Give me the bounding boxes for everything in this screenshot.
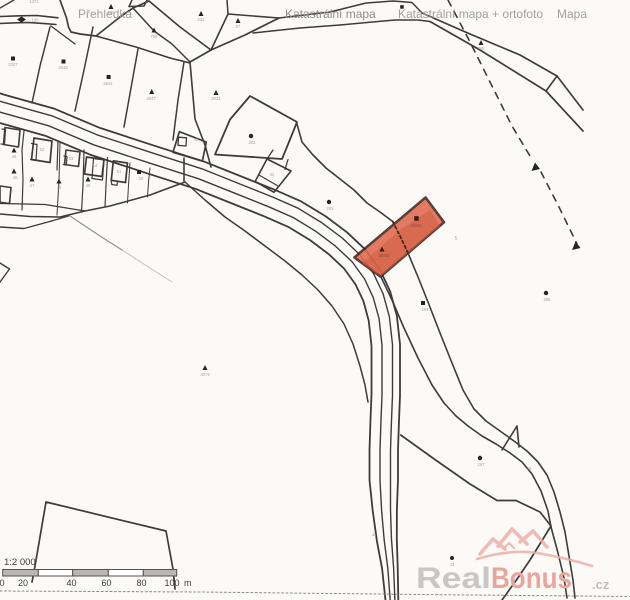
- svg-text:766: 766: [151, 34, 159, 39]
- svg-text:Katastrální mapa + ortofoto: Katastrální mapa + ortofoto: [398, 7, 543, 21]
- svg-text:295: 295: [544, 297, 552, 302]
- svg-text:42: 42: [270, 172, 275, 177]
- svg-text:20: 20: [18, 578, 28, 588]
- svg-text:2072: 2072: [200, 372, 210, 377]
- svg-text:120: 120: [32, 18, 40, 23]
- svg-text:293/2: 293/2: [410, 223, 422, 228]
- svg-text:294: 294: [422, 307, 430, 312]
- svg-text:100: 100: [164, 578, 179, 588]
- svg-text:45: 45: [12, 154, 17, 159]
- svg-text:Real: Real: [416, 562, 491, 595]
- svg-text:2641: 2641: [103, 81, 113, 86]
- svg-text:293: 293: [327, 206, 335, 211]
- svg-text:Bonus: Bonus: [491, 562, 572, 595]
- svg-text:2307: 2307: [8, 62, 18, 67]
- svg-text:0: 0: [0, 578, 5, 588]
- svg-text:Katastrální mapa: Katastrální mapa: [285, 7, 376, 21]
- svg-text:45: 45: [527, 466, 532, 471]
- svg-text:m: m: [184, 578, 192, 588]
- svg-text:52: 52: [40, 147, 45, 152]
- svg-text:765: 765: [478, 46, 486, 51]
- svg-text:.cz: .cz: [592, 577, 610, 592]
- svg-text:1371: 1371: [29, 0, 39, 4]
- svg-text:2021: 2021: [211, 96, 221, 101]
- svg-text:293/1: 293/1: [378, 253, 390, 258]
- svg-text:48: 48: [57, 185, 62, 190]
- svg-text:2647: 2647: [146, 96, 156, 101]
- svg-text:5: 5: [455, 236, 458, 242]
- svg-text:1:2 000: 1:2 000: [4, 557, 36, 568]
- svg-text:232: 232: [198, 17, 206, 22]
- svg-text:297: 297: [478, 462, 486, 467]
- svg-text:60: 60: [101, 578, 111, 588]
- svg-text:Mapa: Mapa: [557, 7, 587, 21]
- svg-text:292: 292: [249, 140, 257, 145]
- svg-text:47: 47: [30, 183, 35, 188]
- svg-text:50: 50: [139, 176, 144, 181]
- svg-text:49: 49: [86, 183, 91, 188]
- svg-text:80: 80: [136, 578, 146, 588]
- svg-text:40: 40: [66, 578, 76, 588]
- svg-text:46: 46: [13, 175, 18, 180]
- svg-text:2648: 2648: [58, 65, 68, 70]
- svg-text:53: 53: [69, 156, 74, 161]
- svg-text:Přehledka: Přehledka: [78, 7, 132, 21]
- svg-text:54: 54: [93, 163, 98, 168]
- svg-text:67: 67: [236, 24, 241, 29]
- svg-text:45: 45: [372, 532, 377, 537]
- svg-text:51: 51: [117, 169, 122, 174]
- svg-text:40: 40: [194, 137, 199, 142]
